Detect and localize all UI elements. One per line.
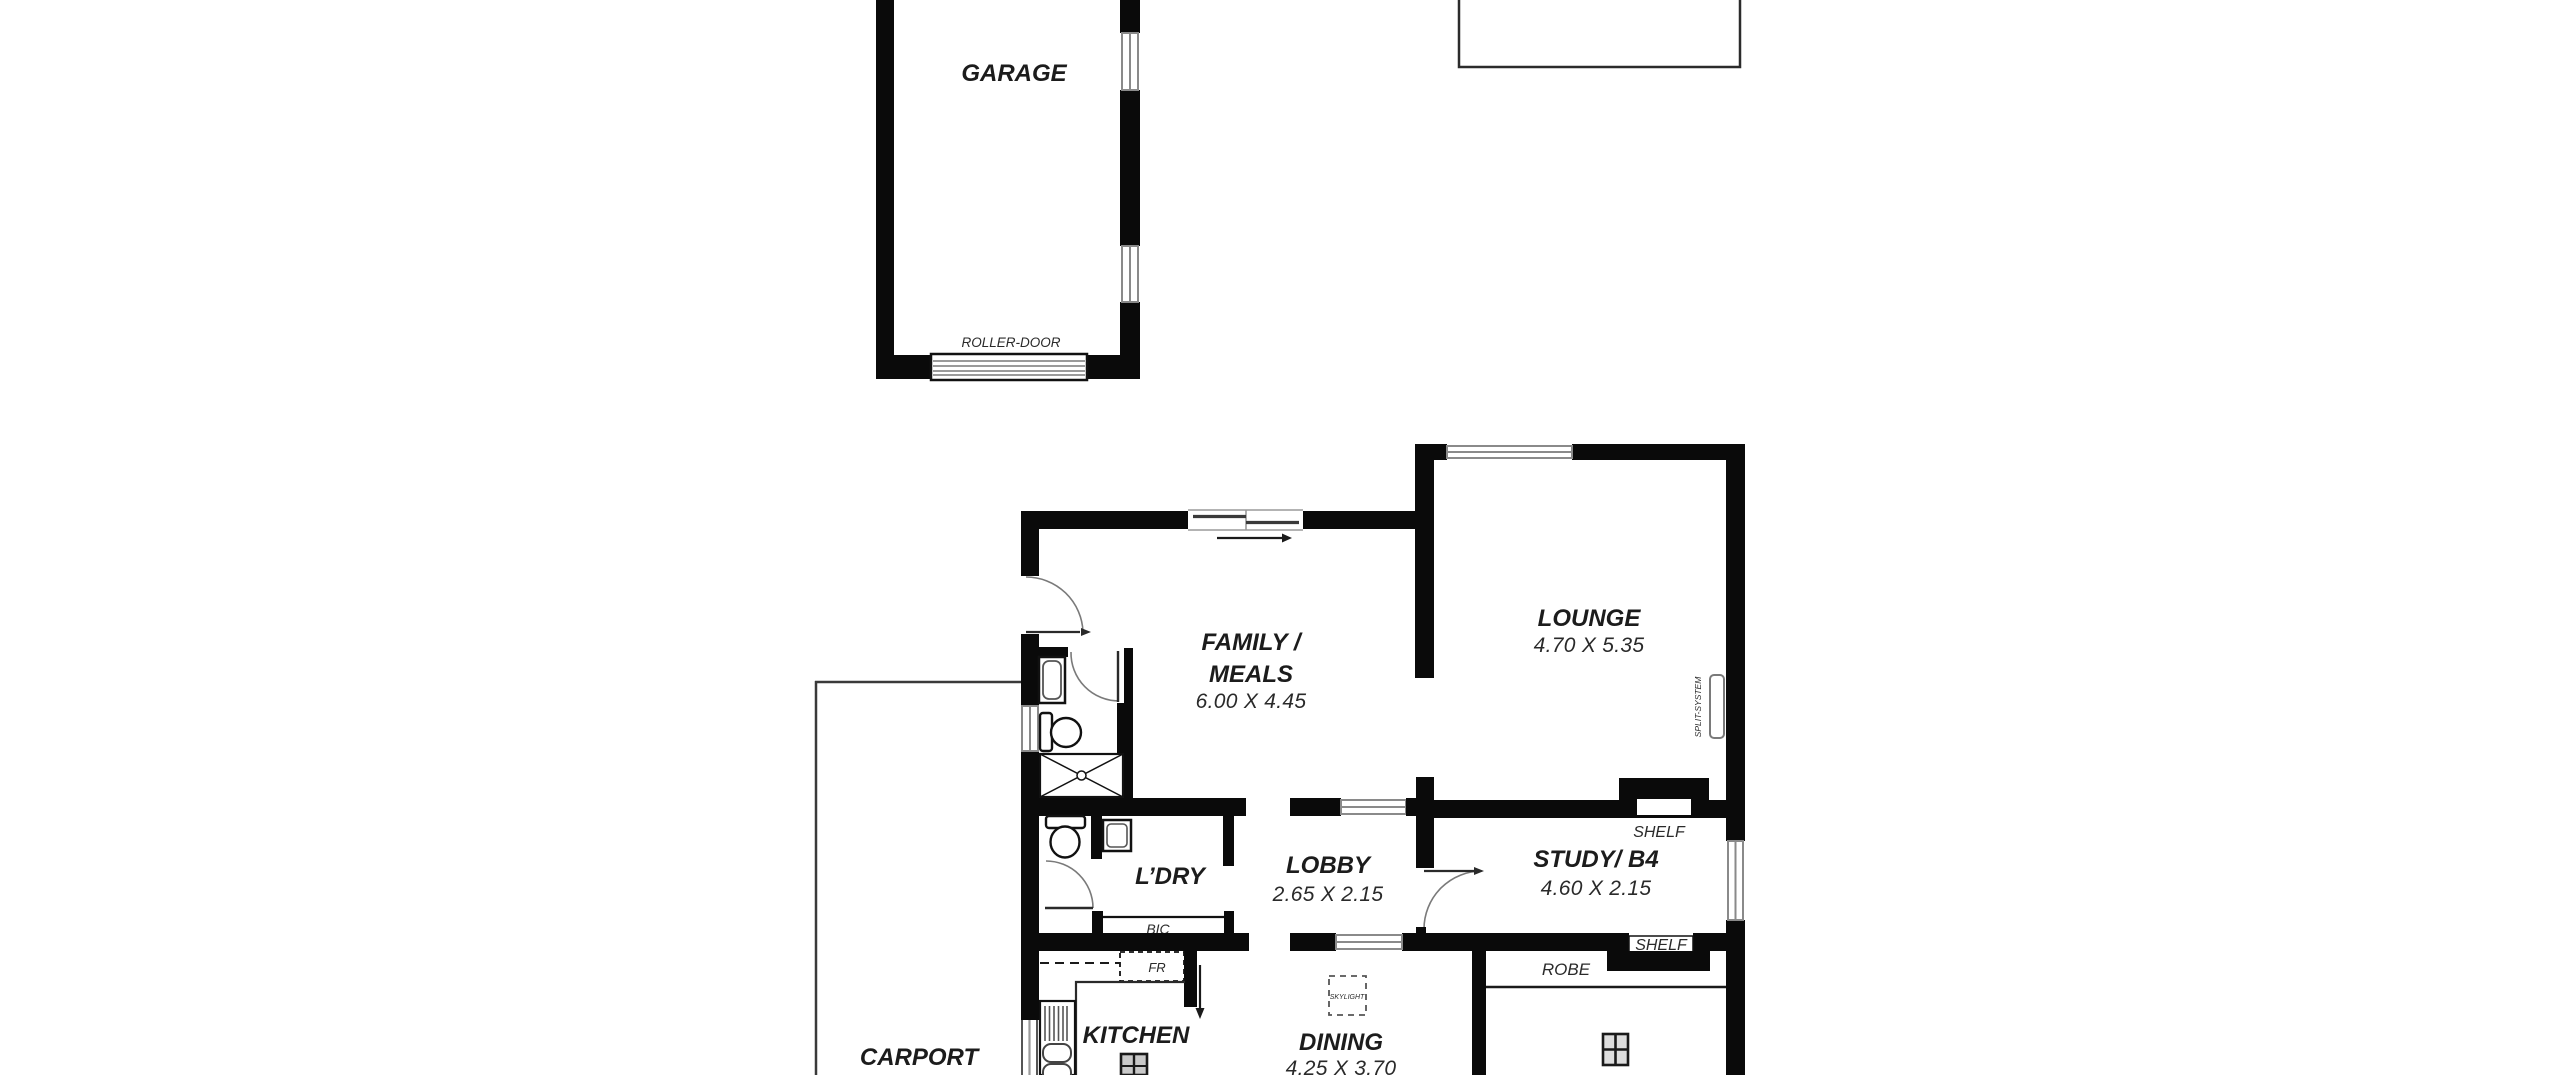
svg-text:4.25 X 3.70: 4.25 X 3.70 (1286, 1057, 1397, 1075)
svg-text:STUDY/ B4: STUDY/ B4 (1533, 846, 1658, 873)
svg-text:MEALS: MEALS (1209, 661, 1293, 688)
svg-text:KITCHEN: KITCHEN (1083, 1022, 1190, 1049)
svg-text:L’DRY: L’DRY (1135, 863, 1207, 890)
svg-text:2.65 X 2.15: 2.65 X 2.15 (1272, 883, 1384, 906)
svg-text:FAMILY /: FAMILY / (1201, 629, 1302, 656)
svg-text:6.00 X 4.45: 6.00 X 4.45 (1196, 690, 1307, 713)
svg-text:SKYLIGHT: SKYLIGHT (1330, 994, 1365, 1001)
svg-text:GARAGE: GARAGE (961, 60, 1067, 87)
svg-text:SPLIT-SYSTEM: SPLIT-SYSTEM (1693, 676, 1703, 738)
svg-text:DINING: DINING (1299, 1029, 1383, 1056)
svg-text:LOBBY: LOBBY (1286, 852, 1372, 879)
svg-text:SHELF: SHELF (1633, 824, 1686, 841)
svg-text:LOUNGE: LOUNGE (1538, 605, 1642, 632)
svg-text:ROLLER-DOOR: ROLLER-DOOR (961, 335, 1060, 350)
svg-text:4.70 X 5.35: 4.70 X 5.35 (1534, 634, 1645, 657)
svg-text:CARPORT: CARPORT (860, 1044, 981, 1071)
svg-text:4.60 X 2.15: 4.60 X 2.15 (1541, 877, 1652, 900)
svg-text:FR: FR (1148, 960, 1165, 975)
svg-text:ROBE: ROBE (1542, 960, 1591, 979)
